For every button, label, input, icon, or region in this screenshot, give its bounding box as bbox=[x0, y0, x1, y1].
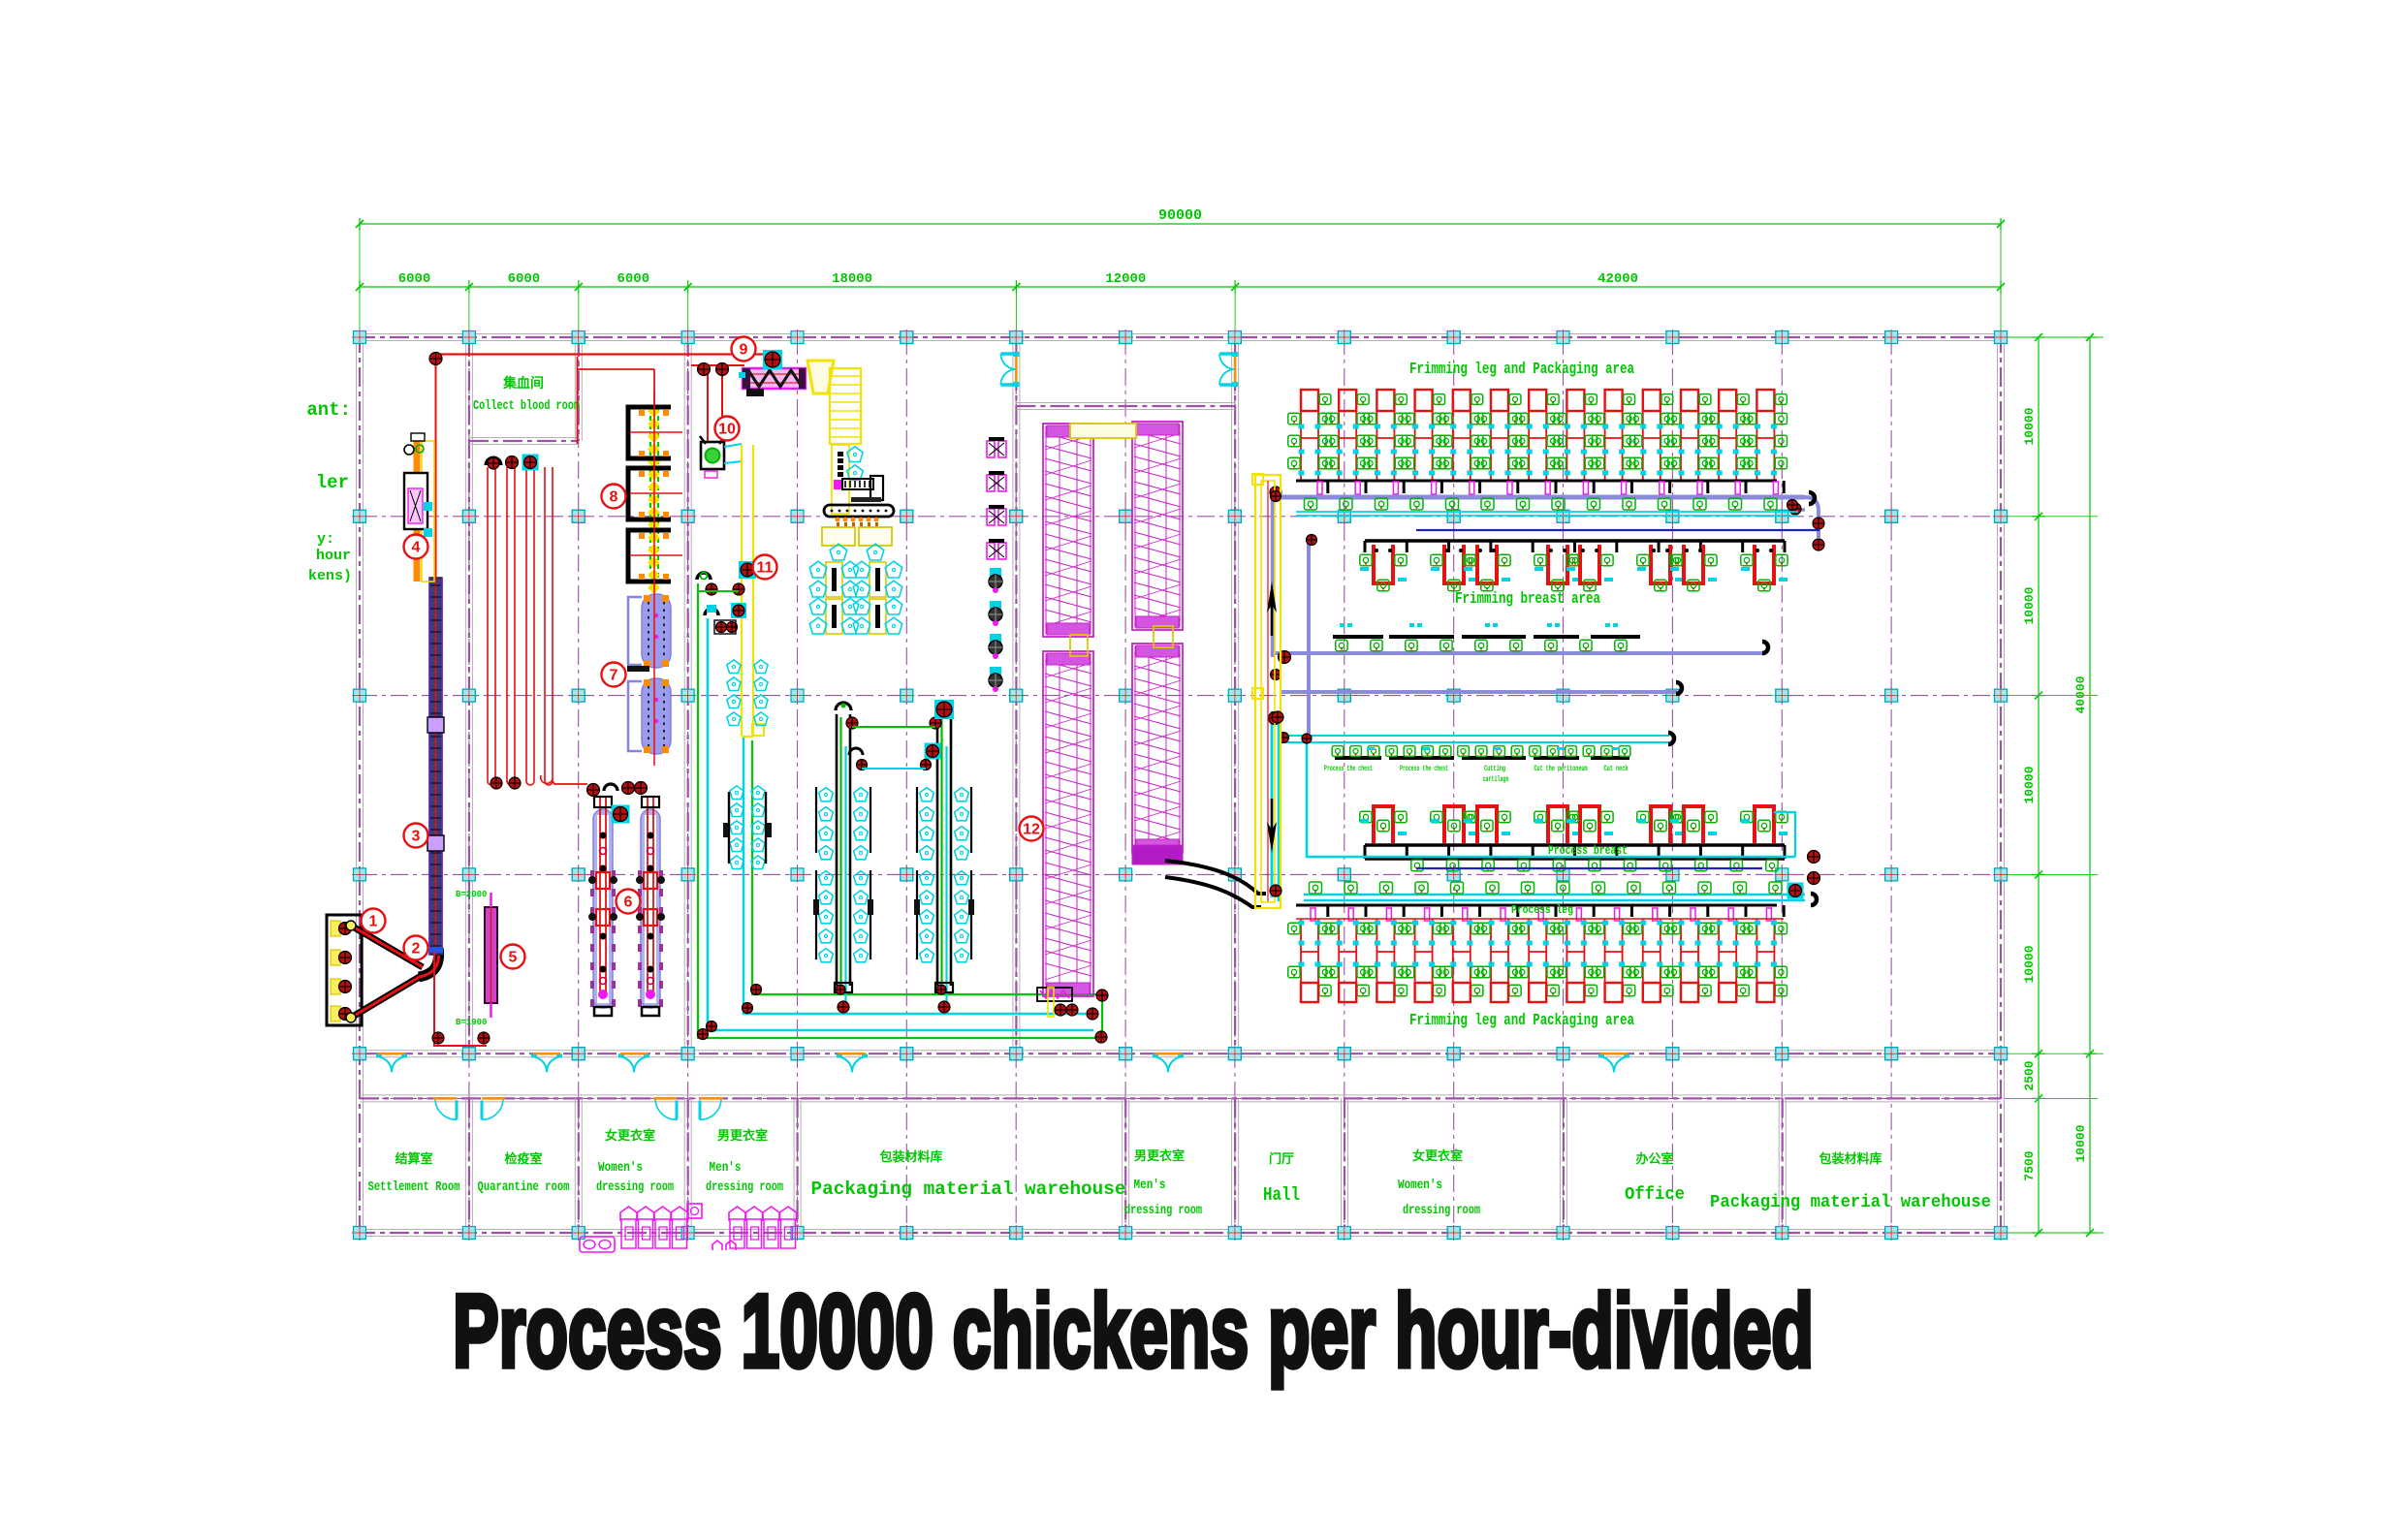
svg-text:18000: 18000 bbox=[832, 271, 872, 287]
svg-text:4: 4 bbox=[412, 540, 421, 556]
svg-text:dressing room: dressing room bbox=[706, 1179, 783, 1195]
svg-text:ler: ler bbox=[316, 472, 349, 493]
svg-text:6: 6 bbox=[624, 895, 633, 911]
svg-text:结算室: 结算室 bbox=[395, 1151, 432, 1167]
svg-text:门厅: 门厅 bbox=[1269, 1151, 1294, 1167]
svg-text:Process 10000 chickens per hou: Process 10000 chickens per hour-divided bbox=[453, 1273, 1814, 1389]
svg-text:包装材料库: 包装材料库 bbox=[879, 1149, 942, 1165]
svg-text:Collect blood room: Collect blood room bbox=[473, 398, 580, 414]
svg-text:10000: 10000 bbox=[2073, 1124, 2088, 1162]
svg-text:10000: 10000 bbox=[2022, 945, 2037, 983]
svg-text:Women's: Women's bbox=[1398, 1178, 1442, 1193]
svg-text:dressing room: dressing room bbox=[1124, 1203, 1202, 1218]
svg-text:检疫室: 检疫室 bbox=[504, 1151, 542, 1167]
svg-text:7: 7 bbox=[610, 668, 618, 684]
svg-text:12: 12 bbox=[1023, 822, 1040, 838]
svg-text:12000: 12000 bbox=[1105, 271, 1146, 287]
svg-text:B=2000: B=2000 bbox=[456, 890, 487, 899]
svg-text:42000: 42000 bbox=[1597, 271, 1638, 287]
svg-text:10000: 10000 bbox=[2022, 407, 2037, 445]
svg-text:Cut the peritoneum: Cut the peritoneum bbox=[1534, 765, 1588, 773]
svg-text:7500: 7500 bbox=[2022, 1150, 2037, 1180]
svg-text:9: 9 bbox=[740, 342, 748, 359]
svg-text:Women's: Women's bbox=[598, 1160, 643, 1176]
svg-text:hour: hour bbox=[316, 548, 351, 564]
svg-text:Frimming leg and Packaging are: Frimming leg and Packaging area bbox=[1409, 361, 1634, 379]
svg-text:Quarantine room: Quarantine room bbox=[478, 1179, 570, 1195]
svg-text:11: 11 bbox=[757, 560, 774, 577]
svg-text:Settlement Room: Settlement Room bbox=[368, 1179, 460, 1195]
svg-text:B=1900: B=1900 bbox=[456, 1018, 487, 1027]
svg-text:1: 1 bbox=[369, 914, 378, 930]
svg-text:Process leg: Process leg bbox=[1511, 903, 1573, 917]
svg-text:2: 2 bbox=[412, 941, 421, 958]
svg-text:男更衣室: 男更衣室 bbox=[1134, 1148, 1185, 1164]
svg-text:dressing room: dressing room bbox=[1403, 1203, 1480, 1218]
svg-text:集血间: 集血间 bbox=[502, 375, 544, 393]
svg-text:5: 5 bbox=[509, 950, 518, 966]
svg-text:40000: 40000 bbox=[2073, 676, 2088, 713]
svg-text:6000: 6000 bbox=[398, 271, 431, 287]
svg-text:cartilage: cartilage bbox=[1483, 775, 1509, 784]
svg-text:包装材料库: 包装材料库 bbox=[1819, 1151, 1882, 1167]
svg-text:ant:: ant: bbox=[306, 399, 351, 421]
svg-text:6000: 6000 bbox=[617, 271, 649, 287]
svg-text:2500: 2500 bbox=[2022, 1060, 2037, 1090]
svg-text:10: 10 bbox=[718, 422, 736, 438]
svg-text:女更衣室: 女更衣室 bbox=[1412, 1148, 1463, 1164]
svg-text:y:: y: bbox=[317, 531, 334, 548]
svg-text:10000: 10000 bbox=[2022, 586, 2037, 624]
svg-text:dressing room: dressing room bbox=[596, 1179, 674, 1195]
svg-text:90000: 90000 bbox=[1158, 207, 1202, 224]
svg-text:3: 3 bbox=[412, 829, 421, 845]
svg-text:男更衣室: 男更衣室 bbox=[717, 1128, 768, 1144]
svg-text:10000: 10000 bbox=[2022, 766, 2037, 803]
svg-text:Men's: Men's bbox=[1134, 1178, 1166, 1193]
svg-text:Hall: Hall bbox=[1263, 1184, 1300, 1206]
svg-text:办公室: 办公室 bbox=[1635, 1151, 1673, 1167]
svg-text:6000: 6000 bbox=[508, 271, 541, 287]
svg-text:kens): kens) bbox=[308, 568, 352, 584]
svg-text:Office: Office bbox=[1625, 1185, 1685, 1205]
svg-text:Men's: Men's bbox=[710, 1160, 742, 1176]
svg-text:Process the chest: Process the chest bbox=[1324, 765, 1373, 773]
svg-text:8: 8 bbox=[610, 489, 618, 506]
svg-text:Cut neck: Cut neck bbox=[1604, 765, 1629, 773]
svg-text:Cutting: Cutting bbox=[1484, 765, 1505, 773]
svg-text:Frimming breast area: Frimming breast area bbox=[1455, 590, 1600, 609]
svg-text:Packaging material warehouse: Packaging material warehouse bbox=[811, 1179, 1126, 1200]
svg-text:Packaging material warehouse: Packaging material warehouse bbox=[1710, 1193, 1991, 1212]
svg-text:女更衣室: 女更衣室 bbox=[605, 1128, 655, 1144]
svg-text:Frimming leg and Packaging are: Frimming leg and Packaging area bbox=[1409, 1012, 1634, 1030]
svg-text:Process the chest: Process the chest bbox=[1400, 765, 1448, 773]
